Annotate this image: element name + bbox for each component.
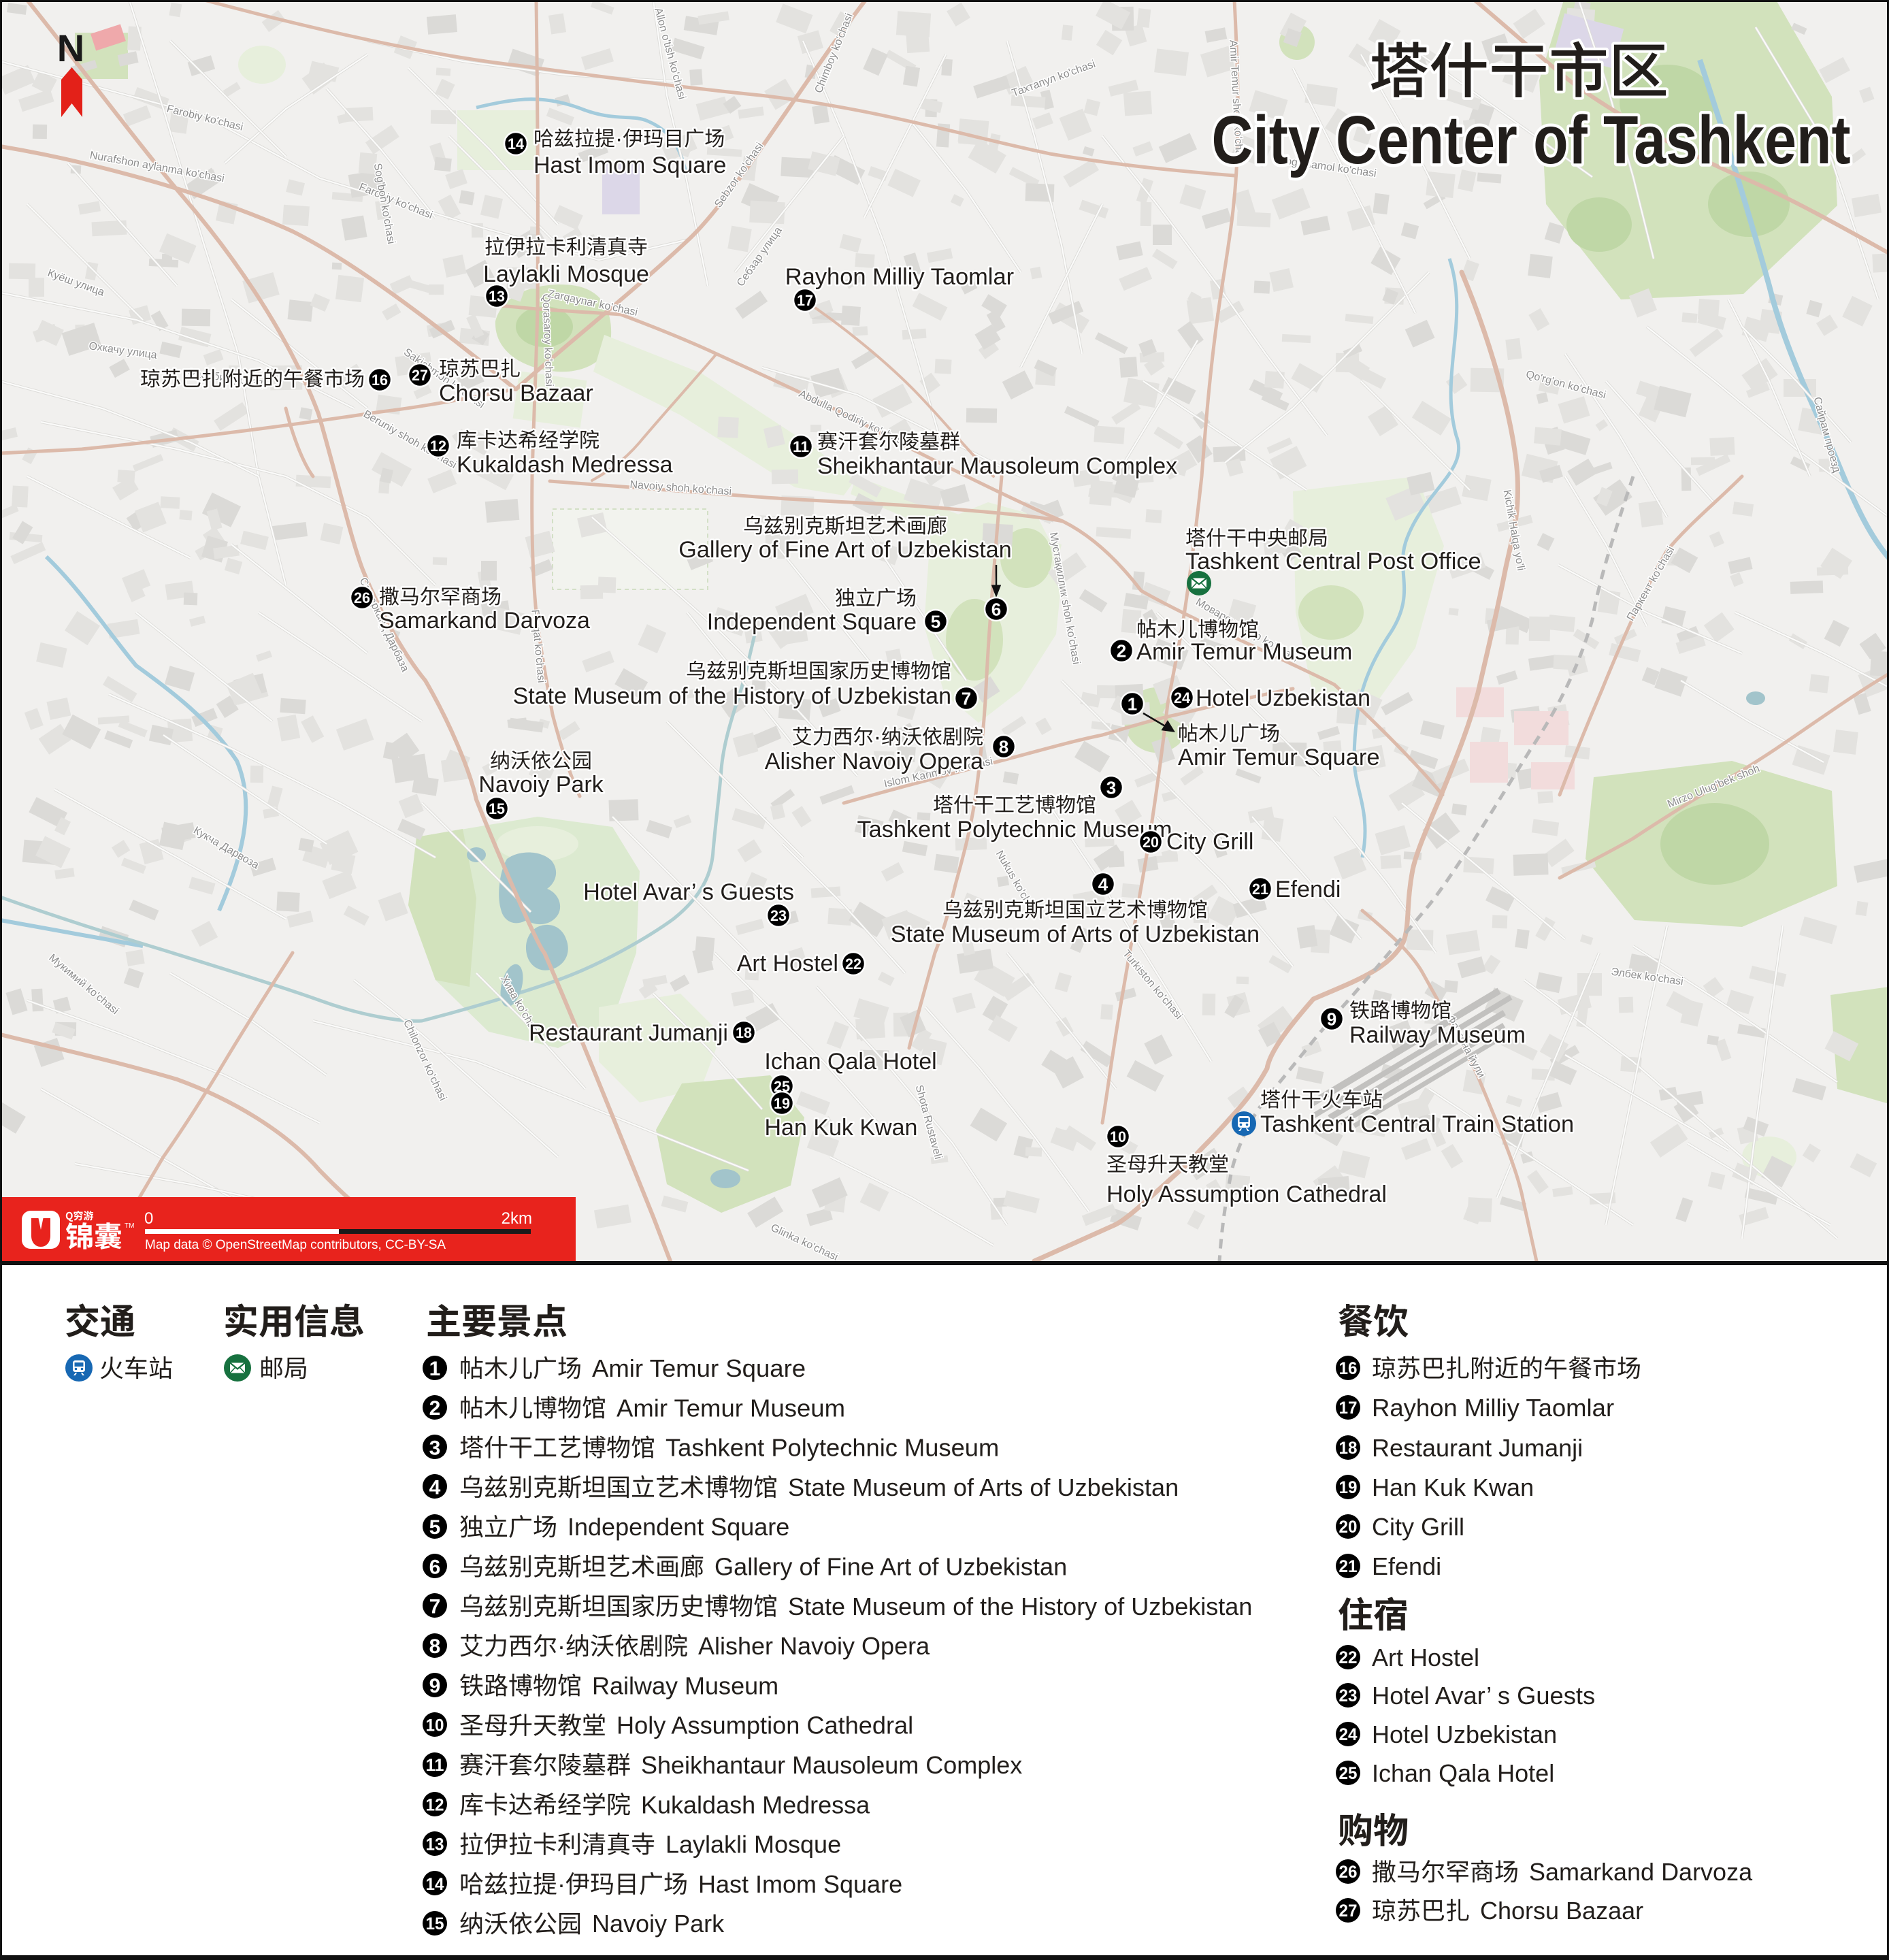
svg-text:Navoiy Park: Navoiy Park	[592, 1910, 725, 1938]
svg-text:15: 15	[489, 800, 505, 817]
svg-text:Navoiy Park: Navoiy Park	[478, 772, 604, 798]
svg-text:3: 3	[429, 1437, 441, 1459]
svg-text:3: 3	[1106, 777, 1116, 798]
svg-text:Hotel Avar’ s Guests: Hotel Avar’ s Guests	[1372, 1682, 1595, 1710]
svg-text:Efendi: Efendi	[1372, 1552, 1441, 1580]
svg-text:State Museum of the History of: State Museum of the History of Uzbekista…	[513, 683, 951, 709]
svg-text:Hast Imom Square: Hast Imom Square	[698, 1870, 902, 1898]
svg-text:State Museum of Arts of Uzbeki: State Museum of Arts of Uzbekistan	[788, 1473, 1179, 1501]
svg-text:Independent Square: Independent Square	[707, 609, 917, 635]
svg-text:25: 25	[1339, 1764, 1358, 1783]
svg-text:22: 22	[1339, 1648, 1358, 1667]
svg-text:5: 5	[931, 611, 940, 632]
svg-text:1: 1	[1128, 693, 1137, 714]
svg-text:Ichan Qala Hotel: Ichan Qala Hotel	[764, 1049, 936, 1075]
svg-text:12: 12	[426, 1795, 444, 1814]
svg-text:16: 16	[372, 372, 388, 389]
svg-text:2km: 2km	[502, 1209, 532, 1228]
svg-text:Alisher Navoiy Opera: Alisher Navoiy Opera	[698, 1632, 930, 1660]
svg-text:4: 4	[1098, 874, 1108, 894]
svg-text:14: 14	[508, 135, 525, 152]
svg-text:Hast Imom Square: Hast Imom Square	[533, 152, 726, 178]
svg-text:Chorsu Bazaar: Chorsu Bazaar	[439, 380, 593, 406]
svg-text:12: 12	[430, 438, 446, 455]
svg-text:1: 1	[429, 1358, 441, 1380]
svg-text:23: 23	[770, 907, 787, 924]
svg-text:2: 2	[1117, 640, 1126, 661]
svg-text:8: 8	[429, 1635, 441, 1658]
svg-text:7: 7	[429, 1596, 441, 1618]
svg-text:22: 22	[845, 955, 861, 973]
svg-text:·: ·	[615, 126, 623, 152]
svg-text:7: 7	[962, 688, 971, 708]
svg-text:18: 18	[1339, 1439, 1358, 1458]
svg-text:13: 13	[489, 288, 505, 305]
svg-text:19: 19	[774, 1095, 790, 1112]
svg-text:Railway Museum: Railway Museum	[592, 1671, 778, 1699]
svg-text:10: 10	[426, 1716, 444, 1735]
svg-text:17: 17	[1339, 1399, 1358, 1418]
svg-text:State Museum of the History of: State Museum of the History of Uzbekista…	[788, 1592, 1252, 1620]
svg-text:Art Hostel: Art Hostel	[737, 951, 838, 977]
svg-text:City Center of Tashkent: City Center of Tashkent	[1212, 102, 1851, 178]
svg-text:·: ·	[874, 724, 881, 750]
svg-text:Chorsu Bazaar: Chorsu Bazaar	[1480, 1897, 1643, 1925]
svg-text:6: 6	[991, 599, 1001, 619]
svg-text:City Grill: City Grill	[1166, 829, 1253, 855]
svg-text:21: 21	[1252, 881, 1268, 898]
svg-text:26: 26	[354, 589, 370, 606]
svg-text:Independent Square: Independent Square	[568, 1513, 789, 1541]
svg-text:9: 9	[1327, 1009, 1336, 1029]
svg-text:N: N	[57, 27, 84, 69]
svg-text:18: 18	[736, 1024, 752, 1041]
svg-text:Alisher Navoiy Opera: Alisher Navoiy Opera	[765, 749, 983, 774]
svg-text:Railway Museum: Railway Museum	[1349, 1022, 1526, 1048]
svg-text:Han Kuk Kwan: Han Kuk Kwan	[765, 1115, 918, 1141]
svg-text:Gallery of Fine Art of Uzbekis: Gallery of Fine Art of Uzbekistan	[714, 1553, 1067, 1581]
svg-text:State Museum of Arts of Uzbeki: State Museum of Arts of Uzbekistan	[891, 921, 1260, 947]
svg-text:Samarkand Darvoza: Samarkand Darvoza	[1529, 1858, 1753, 1886]
svg-text:Rayhon Milliy Taomlar: Rayhon Milliy Taomlar	[785, 264, 1014, 290]
svg-text:Gallery of Fine Art of Uzbekis: Gallery of Fine Art of Uzbekistan	[678, 537, 1011, 563]
svg-text:Laylakli Mosque: Laylakli Mosque	[483, 261, 649, 287]
svg-text:11: 11	[426, 1756, 444, 1775]
svg-text:10: 10	[1110, 1128, 1126, 1145]
svg-text:Tashkent Polytechnic Museum: Tashkent Polytechnic Museum	[857, 817, 1172, 843]
svg-text:Amir Temur Square: Amir Temur Square	[1178, 745, 1380, 770]
svg-text:Hotel Uzbekistan: Hotel Uzbekistan	[1196, 685, 1370, 711]
svg-text:23: 23	[1339, 1686, 1358, 1705]
svg-text:5: 5	[429, 1516, 441, 1539]
svg-text:2: 2	[429, 1397, 441, 1420]
svg-text:24: 24	[1174, 689, 1191, 706]
svg-text:Rayhon Milliy Taomlar: Rayhon Milliy Taomlar	[1372, 1394, 1614, 1422]
svg-text:Tashkent Central Train Station: Tashkent Central Train Station	[1260, 1111, 1574, 1137]
svg-text:·: ·	[557, 1870, 565, 1898]
svg-text:Art Hostel: Art Hostel	[1372, 1644, 1479, 1671]
svg-text:11: 11	[793, 438, 809, 455]
svg-text:Restaurant Jumanji: Restaurant Jumanji	[1372, 1434, 1583, 1462]
svg-text:Map data © OpenStreetMap contr: Map data © OpenStreetMap contributors, C…	[145, 1238, 446, 1252]
svg-text:21: 21	[1339, 1557, 1358, 1576]
svg-text:Tashkent Polytechnic Museum: Tashkent Polytechnic Museum	[666, 1434, 999, 1462]
svg-text:15: 15	[426, 1914, 444, 1933]
svg-text:8: 8	[999, 736, 1008, 757]
svg-text:Samarkand Darvoza: Samarkand Darvoza	[379, 608, 590, 634]
svg-text:Hotel Uzbekistan: Hotel Uzbekistan	[1372, 1720, 1557, 1748]
svg-text:9: 9	[429, 1675, 441, 1697]
svg-text:TM: TM	[125, 1222, 134, 1230]
svg-text:Amir Temur Museum: Amir Temur Museum	[617, 1394, 845, 1422]
svg-text:27: 27	[1339, 1901, 1358, 1921]
svg-text:Efendi: Efendi	[1275, 877, 1341, 902]
svg-text:16: 16	[1339, 1359, 1358, 1378]
svg-text:Holy Assumption Cathedral: Holy Assumption Cathedral	[617, 1712, 913, 1739]
svg-text:Han Kuk Kwan: Han Kuk Kwan	[1372, 1473, 1534, 1501]
svg-text:Kukaldash Medressa: Kukaldash Medressa	[457, 452, 673, 478]
svg-text:Ichan Qala Hotel: Ichan Qala Hotel	[1372, 1759, 1554, 1787]
svg-text:City Grill: City Grill	[1372, 1513, 1464, 1541]
svg-text:Tashkent Central Post Office: Tashkent Central Post Office	[1185, 549, 1481, 574]
svg-text:Laylakli Mosque: Laylakli Mosque	[666, 1831, 841, 1859]
svg-text:20: 20	[1339, 1518, 1358, 1537]
svg-text:4: 4	[429, 1477, 441, 1499]
svg-text:Restaurant Jumanji: Restaurant Jumanji	[529, 1020, 728, 1046]
svg-text:17: 17	[797, 292, 813, 309]
svg-text:Sheikhantaur Mausoleum Complex: Sheikhantaur Mausoleum Complex	[817, 453, 1177, 479]
svg-text:Amir Temur Square: Amir Temur Square	[592, 1354, 806, 1382]
svg-text:14: 14	[426, 1875, 444, 1894]
svg-text:20: 20	[1143, 834, 1159, 851]
svg-text:13: 13	[426, 1835, 444, 1855]
svg-text:Kukaldash Medressa: Kukaldash Medressa	[641, 1791, 870, 1818]
svg-text:Hotel Avar’ s Guests: Hotel Avar’ s Guests	[583, 879, 794, 905]
svg-text:Amir Temur Museum: Amir Temur Museum	[1136, 639, 1352, 665]
svg-text:26: 26	[1339, 1863, 1358, 1882]
svg-text:0: 0	[144, 1209, 153, 1228]
svg-text:·: ·	[557, 1632, 565, 1660]
svg-text:27: 27	[412, 367, 428, 384]
svg-text:6: 6	[429, 1556, 441, 1578]
svg-text:24: 24	[1339, 1725, 1358, 1744]
svg-text:Holy Assumption Cathedral: Holy Assumption Cathedral	[1106, 1181, 1387, 1207]
svg-text:19: 19	[1339, 1478, 1358, 1497]
svg-text:Sheikhantaur Mausoleum Complex: Sheikhantaur Mausoleum Complex	[641, 1751, 1022, 1779]
